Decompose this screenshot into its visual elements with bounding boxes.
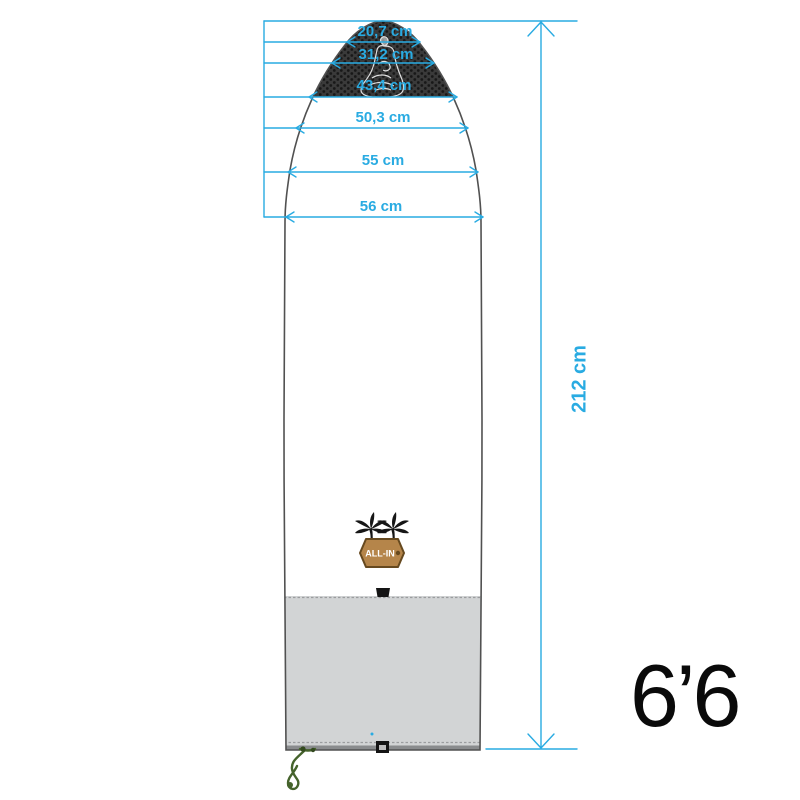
width-measurement-label: 31,2 cm xyxy=(358,46,413,63)
seam-tab xyxy=(376,588,390,597)
cord-knot xyxy=(300,746,305,751)
product-diagram: ALL-IN xyxy=(0,0,800,800)
badge-palm-mark xyxy=(396,551,400,555)
width-measurement-label: 20,7 cm xyxy=(357,23,412,40)
width-measurement-label: 55 cm xyxy=(362,152,405,169)
width-measurement-label: 56 cm xyxy=(360,198,403,215)
width-measurement-label: 50,3 cm xyxy=(355,109,410,126)
bottom-tab-label xyxy=(376,741,389,753)
length-measurement-label: 212 cm xyxy=(569,345,592,413)
stray-mark xyxy=(371,733,374,736)
board-size-label: 6’6 xyxy=(630,652,738,740)
all-in-badge: ALL-IN xyxy=(360,539,404,567)
cord-knot xyxy=(311,748,315,752)
tail-panel xyxy=(280,596,490,752)
cord-toggle xyxy=(287,782,293,788)
badge-text: ALL-IN xyxy=(365,549,395,559)
width-measurement-label: 43,4 cm xyxy=(356,77,411,94)
